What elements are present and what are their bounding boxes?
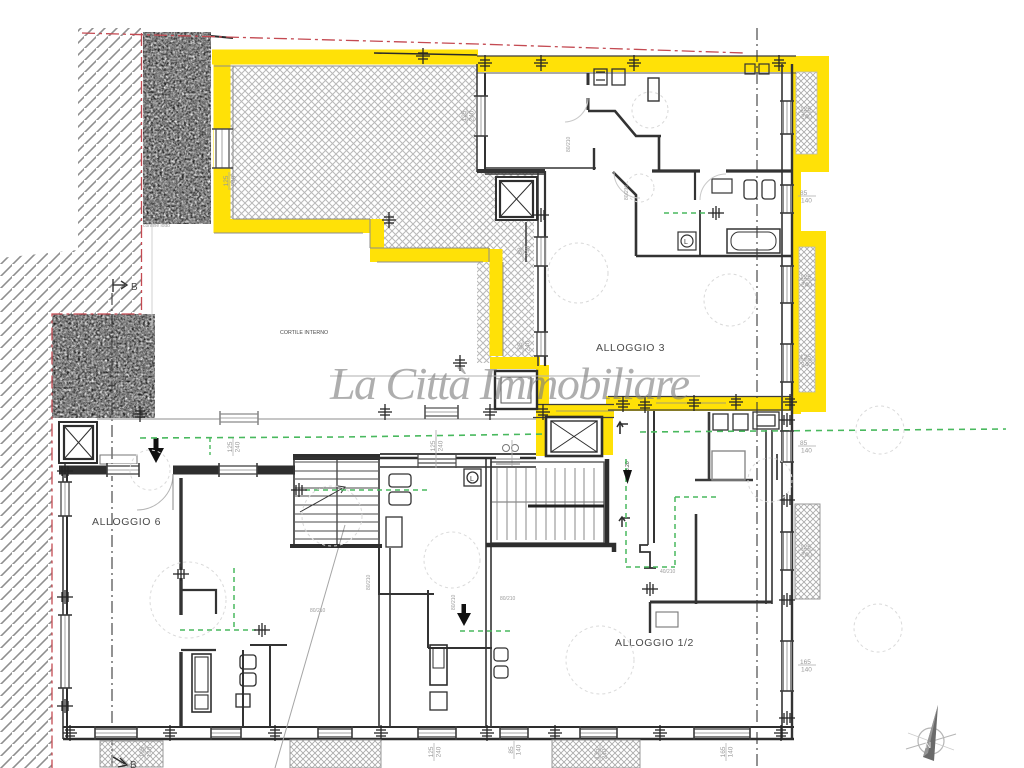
svg-text:240: 240	[235, 441, 242, 452]
svg-text:80/210: 80/210	[310, 608, 326, 614]
svg-text:140: 140	[728, 746, 735, 757]
svg-text:80/210: 80/210	[451, 594, 457, 610]
svg-text:80/210: 80/210	[624, 184, 630, 200]
svg-text:ALLOGGIO 6: ALLOGGIO 6	[92, 516, 161, 528]
svg-text:40/210: 40/210	[660, 569, 676, 575]
svg-text:240: 240	[231, 175, 238, 186]
svg-text:240: 240	[525, 340, 532, 351]
svg-text:240: 240	[801, 362, 812, 369]
svg-text:240: 240	[469, 110, 476, 121]
svg-text:ALLOGGIO 1/2: ALLOGGIO 1/2	[615, 637, 694, 649]
svg-text:confine lotto: confine lotto	[143, 223, 170, 229]
svg-text:ALLOGGIO 3: ALLOGGIO 3	[596, 342, 665, 354]
svg-text:80/210: 80/210	[500, 596, 516, 602]
svg-text:240: 240	[436, 746, 443, 757]
svg-text:140: 140	[801, 448, 812, 455]
svg-text:B: B	[130, 760, 137, 768]
svg-text:L: L	[470, 476, 474, 483]
svg-text:80/210: 80/210	[566, 136, 572, 152]
svg-text:240: 240	[438, 440, 445, 451]
svg-text:La Città Immobiliare: La Città Immobiliare	[329, 358, 690, 409]
svg-text:80/210: 80/210	[366, 574, 372, 590]
svg-text:140: 140	[801, 667, 812, 674]
svg-text:140: 140	[801, 198, 812, 205]
svg-text:N: N	[925, 740, 931, 750]
svg-text:CORTILE INTERNO: CORTILE INTERNO	[280, 330, 328, 336]
svg-text:B: B	[131, 282, 138, 293]
svg-text:240: 240	[801, 114, 812, 121]
svg-text:240: 240	[525, 245, 532, 256]
svg-text:140: 140	[516, 744, 523, 755]
svg-text:L: L	[684, 239, 688, 246]
svg-text:240: 240	[801, 282, 812, 289]
